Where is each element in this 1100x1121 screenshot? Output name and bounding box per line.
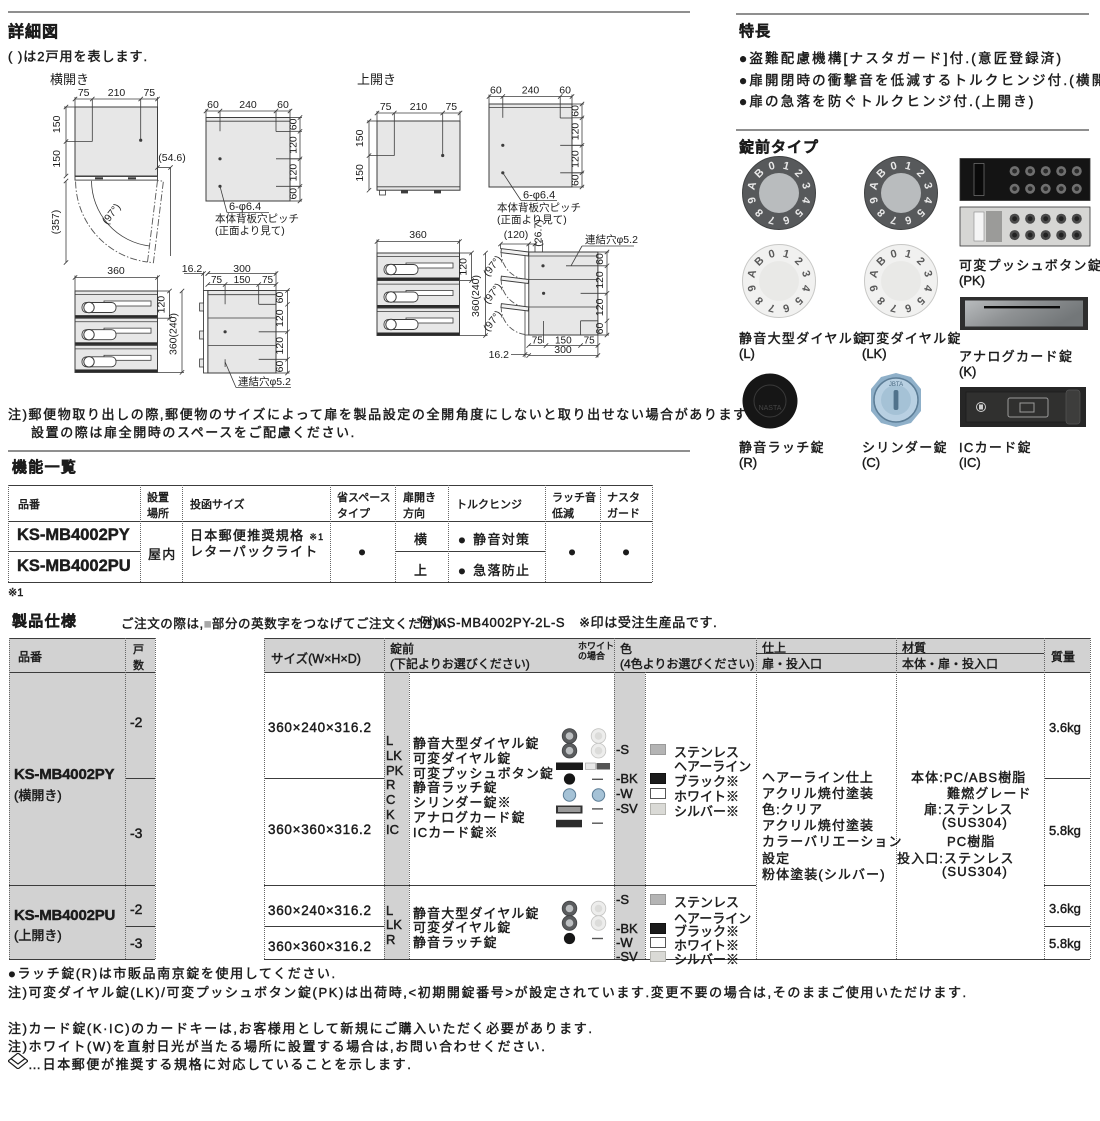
svg-text:240: 240 bbox=[239, 99, 257, 111]
svg-text:16.2: 16.2 bbox=[489, 349, 510, 361]
svg-text:120: 120 bbox=[570, 123, 582, 141]
svg-text:150: 150 bbox=[51, 150, 63, 168]
svg-text:本体背板穴ピッチ: 本体背板穴ピッチ bbox=[497, 201, 581, 214]
svg-text:JBTA: JBTA bbox=[889, 382, 903, 388]
svg-text:6-φ6.4: 6-φ6.4 bbox=[523, 190, 555, 202]
svg-text:150: 150 bbox=[354, 129, 366, 147]
svg-text:150: 150 bbox=[354, 164, 366, 182]
svg-text:60: 60 bbox=[570, 174, 582, 186]
svg-text:(54.6): (54.6) bbox=[158, 152, 185, 164]
svg-text:60: 60 bbox=[274, 361, 286, 373]
svg-text:(97°): (97°) bbox=[481, 253, 505, 278]
svg-text:60: 60 bbox=[570, 105, 582, 117]
svg-text:210: 210 bbox=[410, 101, 428, 113]
svg-text:60: 60 bbox=[288, 188, 300, 200]
svg-text:横開き: 横開き bbox=[50, 72, 89, 87]
svg-text:連結穴φ5.2: 連結穴φ5.2 bbox=[585, 233, 638, 246]
svg-text:上開き: 上開き bbox=[357, 72, 396, 87]
svg-text:120: 120 bbox=[156, 296, 168, 314]
svg-text:(97°): (97°) bbox=[100, 201, 124, 226]
svg-text:(97°): (97°) bbox=[481, 308, 505, 333]
svg-text:120: 120 bbox=[274, 337, 286, 355]
svg-text:(97°): (97°) bbox=[481, 281, 505, 306]
svg-text:75: 75 bbox=[211, 275, 223, 286]
svg-text:360(240): 360(240) bbox=[470, 275, 482, 317]
svg-text:150: 150 bbox=[234, 275, 251, 286]
svg-text:150: 150 bbox=[51, 115, 63, 133]
svg-text:120: 120 bbox=[458, 258, 470, 276]
svg-text:120: 120 bbox=[288, 136, 300, 154]
svg-text:75: 75 bbox=[262, 275, 274, 286]
svg-text:NASTA: NASTA bbox=[759, 405, 782, 412]
svg-text:6-φ6.4: 6-φ6.4 bbox=[229, 201, 261, 213]
svg-text:300: 300 bbox=[233, 263, 251, 275]
svg-text:60: 60 bbox=[490, 85, 502, 97]
svg-text:120: 120 bbox=[570, 150, 582, 168]
svg-text:75: 75 bbox=[143, 87, 155, 99]
svg-text:120: 120 bbox=[594, 298, 606, 316]
svg-text:60: 60 bbox=[559, 85, 571, 97]
svg-text:60: 60 bbox=[207, 99, 219, 111]
svg-text:75: 75 bbox=[532, 336, 544, 347]
svg-text:360(240): 360(240) bbox=[168, 313, 180, 355]
svg-text:60: 60 bbox=[594, 253, 606, 265]
svg-text:75: 75 bbox=[380, 101, 392, 113]
svg-text:360: 360 bbox=[409, 229, 427, 241]
svg-text:(120): (120) bbox=[504, 229, 529, 241]
svg-text:75: 75 bbox=[445, 101, 457, 113]
svg-text:240: 240 bbox=[522, 85, 540, 97]
svg-text:75: 75 bbox=[78, 87, 90, 99]
svg-text:60: 60 bbox=[288, 118, 300, 130]
svg-text:360: 360 bbox=[107, 265, 125, 277]
svg-text:75: 75 bbox=[584, 336, 596, 347]
svg-text:(正面より見て): (正面より見て) bbox=[215, 225, 285, 237]
svg-text:本体背板穴ピッチ: 本体背板穴ピッチ bbox=[215, 212, 299, 225]
svg-text:120: 120 bbox=[274, 309, 286, 327]
svg-text:120: 120 bbox=[288, 164, 300, 182]
svg-text:60: 60 bbox=[277, 99, 289, 111]
svg-text:210: 210 bbox=[108, 87, 126, 99]
svg-text:120: 120 bbox=[594, 271, 606, 289]
svg-text:(357): (357) bbox=[50, 210, 62, 235]
svg-text:60: 60 bbox=[594, 323, 606, 335]
svg-text:連結穴φ5.2: 連結穴φ5.2 bbox=[238, 375, 291, 388]
svg-text:60: 60 bbox=[274, 292, 286, 304]
svg-text:300: 300 bbox=[554, 344, 572, 356]
